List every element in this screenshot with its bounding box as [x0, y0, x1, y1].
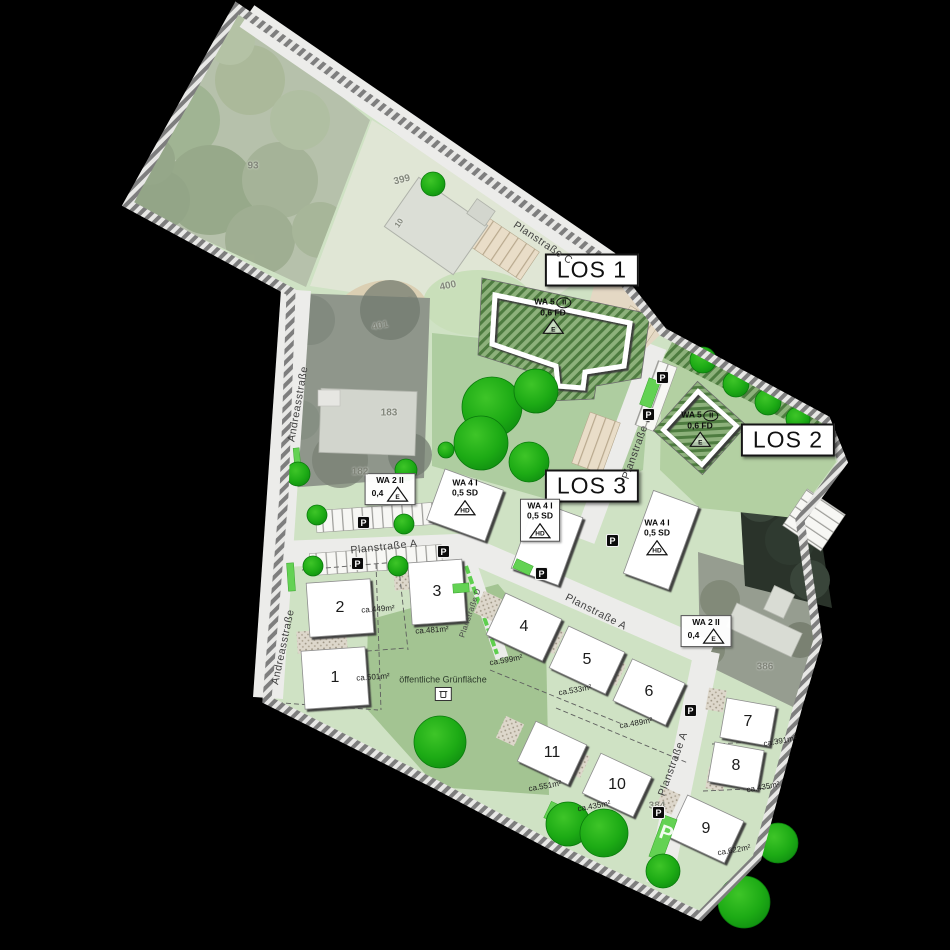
site-plan: LOS 1 LOS 2 LOS 3 WA 5II 0,6 FD E WA 5II…	[0, 0, 950, 950]
zone-value: 0,5 SD	[452, 489, 478, 499]
parking-sign: P	[535, 567, 548, 580]
house-type-icon: E	[386, 486, 408, 502]
house-type-icon: HD	[454, 499, 476, 515]
zone-use: WA 5	[534, 296, 554, 306]
parcel-number-183: 183	[381, 408, 398, 419]
zone-label-wa4-2: WA 4 I 0,5 SD HD	[520, 499, 560, 542]
zone-label-wa2-east: WA 2 II 0,4 E	[681, 615, 732, 647]
plot-number-11: 11	[544, 744, 561, 762]
public-green-label: öffentliche Grünfläche	[399, 675, 486, 702]
zone-value: 0,4	[688, 631, 700, 641]
zone-value: 0,5 SD	[527, 512, 553, 522]
plot-number-4: 4	[520, 618, 529, 636]
zone-label-wa5-los1: WA 5II 0,6 FD E	[534, 297, 571, 334]
parking-sign: P	[351, 557, 364, 570]
zone-use: WA 2 II	[688, 618, 725, 628]
green-area-icon	[434, 687, 452, 702]
zone-value: 0,5 SD	[644, 529, 670, 539]
svg-text:HD: HD	[535, 530, 545, 537]
los-label-2: LOS 2	[741, 424, 835, 457]
plot-number-6: 6	[645, 683, 654, 701]
plot-number-7: 7	[744, 713, 753, 731]
parcel-number-93: 93	[247, 161, 258, 172]
plot-number-8: 8	[732, 757, 741, 775]
zone-label-wa4-3: WA 4 I 0,5 SD HD	[644, 519, 670, 556]
parking-sign: P	[684, 704, 697, 717]
parking-sign: P	[357, 516, 370, 529]
svg-text:HD: HD	[460, 507, 470, 514]
parking-sign: P	[656, 371, 669, 384]
svg-text:E: E	[551, 327, 556, 334]
zone-value: 0,6 FD	[534, 308, 571, 318]
parking-sign: P	[642, 408, 655, 421]
plot-number-1: 1	[331, 669, 340, 687]
zone-label-wa2-west: WA 2 II 0,4 E	[365, 473, 416, 505]
public-green-text: öffentliche Grünfläche	[399, 675, 486, 685]
parking-sign: P	[652, 806, 665, 819]
zone-value: 0,6 FD	[681, 421, 718, 431]
house-type-icon: E	[689, 432, 711, 448]
plot-number-2: 2	[336, 599, 345, 617]
plot-number-10: 10	[608, 776, 626, 794]
svg-text:E: E	[698, 440, 703, 447]
svg-text:E: E	[395, 494, 400, 501]
house-type-icon: E	[542, 319, 564, 335]
zone-use: WA 5	[681, 409, 701, 419]
svg-text:HD: HD	[652, 547, 662, 554]
plot-number-9: 9	[702, 820, 711, 838]
zone-value: 0,4	[372, 489, 384, 499]
plot-number-3: 3	[433, 583, 442, 601]
zone-use: WA 2 II	[372, 476, 409, 486]
parking-sign: P	[606, 534, 619, 547]
plot-number-5: 5	[583, 651, 592, 669]
house-type-icon: HD	[529, 522, 551, 538]
parking-sign: P	[437, 545, 450, 558]
parcel-number-182: 182	[352, 467, 369, 478]
zone-label-wa4-1: WA 4 I 0,5 SD HD	[452, 479, 478, 516]
zone-label-wa5-los2: WA 5II 0,6 FD E	[681, 410, 718, 447]
parcel-number-386: 386	[757, 662, 774, 673]
svg-text:E: E	[711, 636, 716, 643]
house-type-icon: E	[702, 628, 724, 644]
house-type-icon: HD	[646, 539, 668, 555]
site-plan-canvas	[0, 0, 950, 950]
